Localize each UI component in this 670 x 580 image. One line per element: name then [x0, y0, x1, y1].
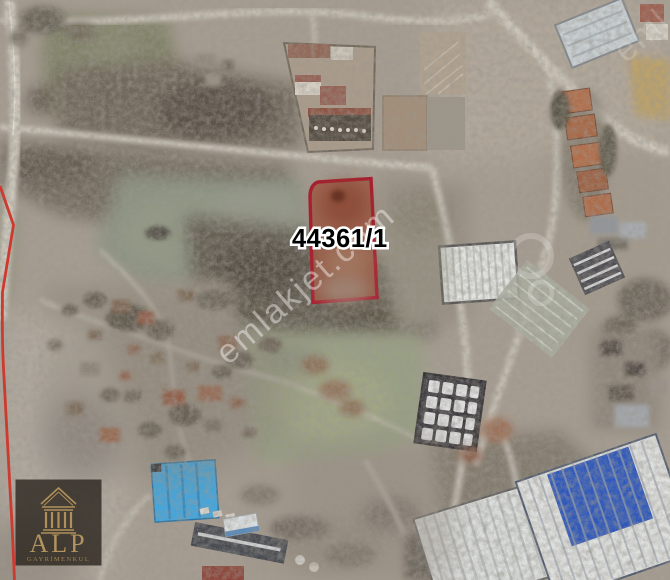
svg-text:ALP: ALP	[29, 529, 87, 558]
svg-text:44361/1: 44361/1	[292, 225, 388, 253]
svg-text:GAYRİMENKUL: GAYRİMENKUL	[27, 556, 90, 563]
